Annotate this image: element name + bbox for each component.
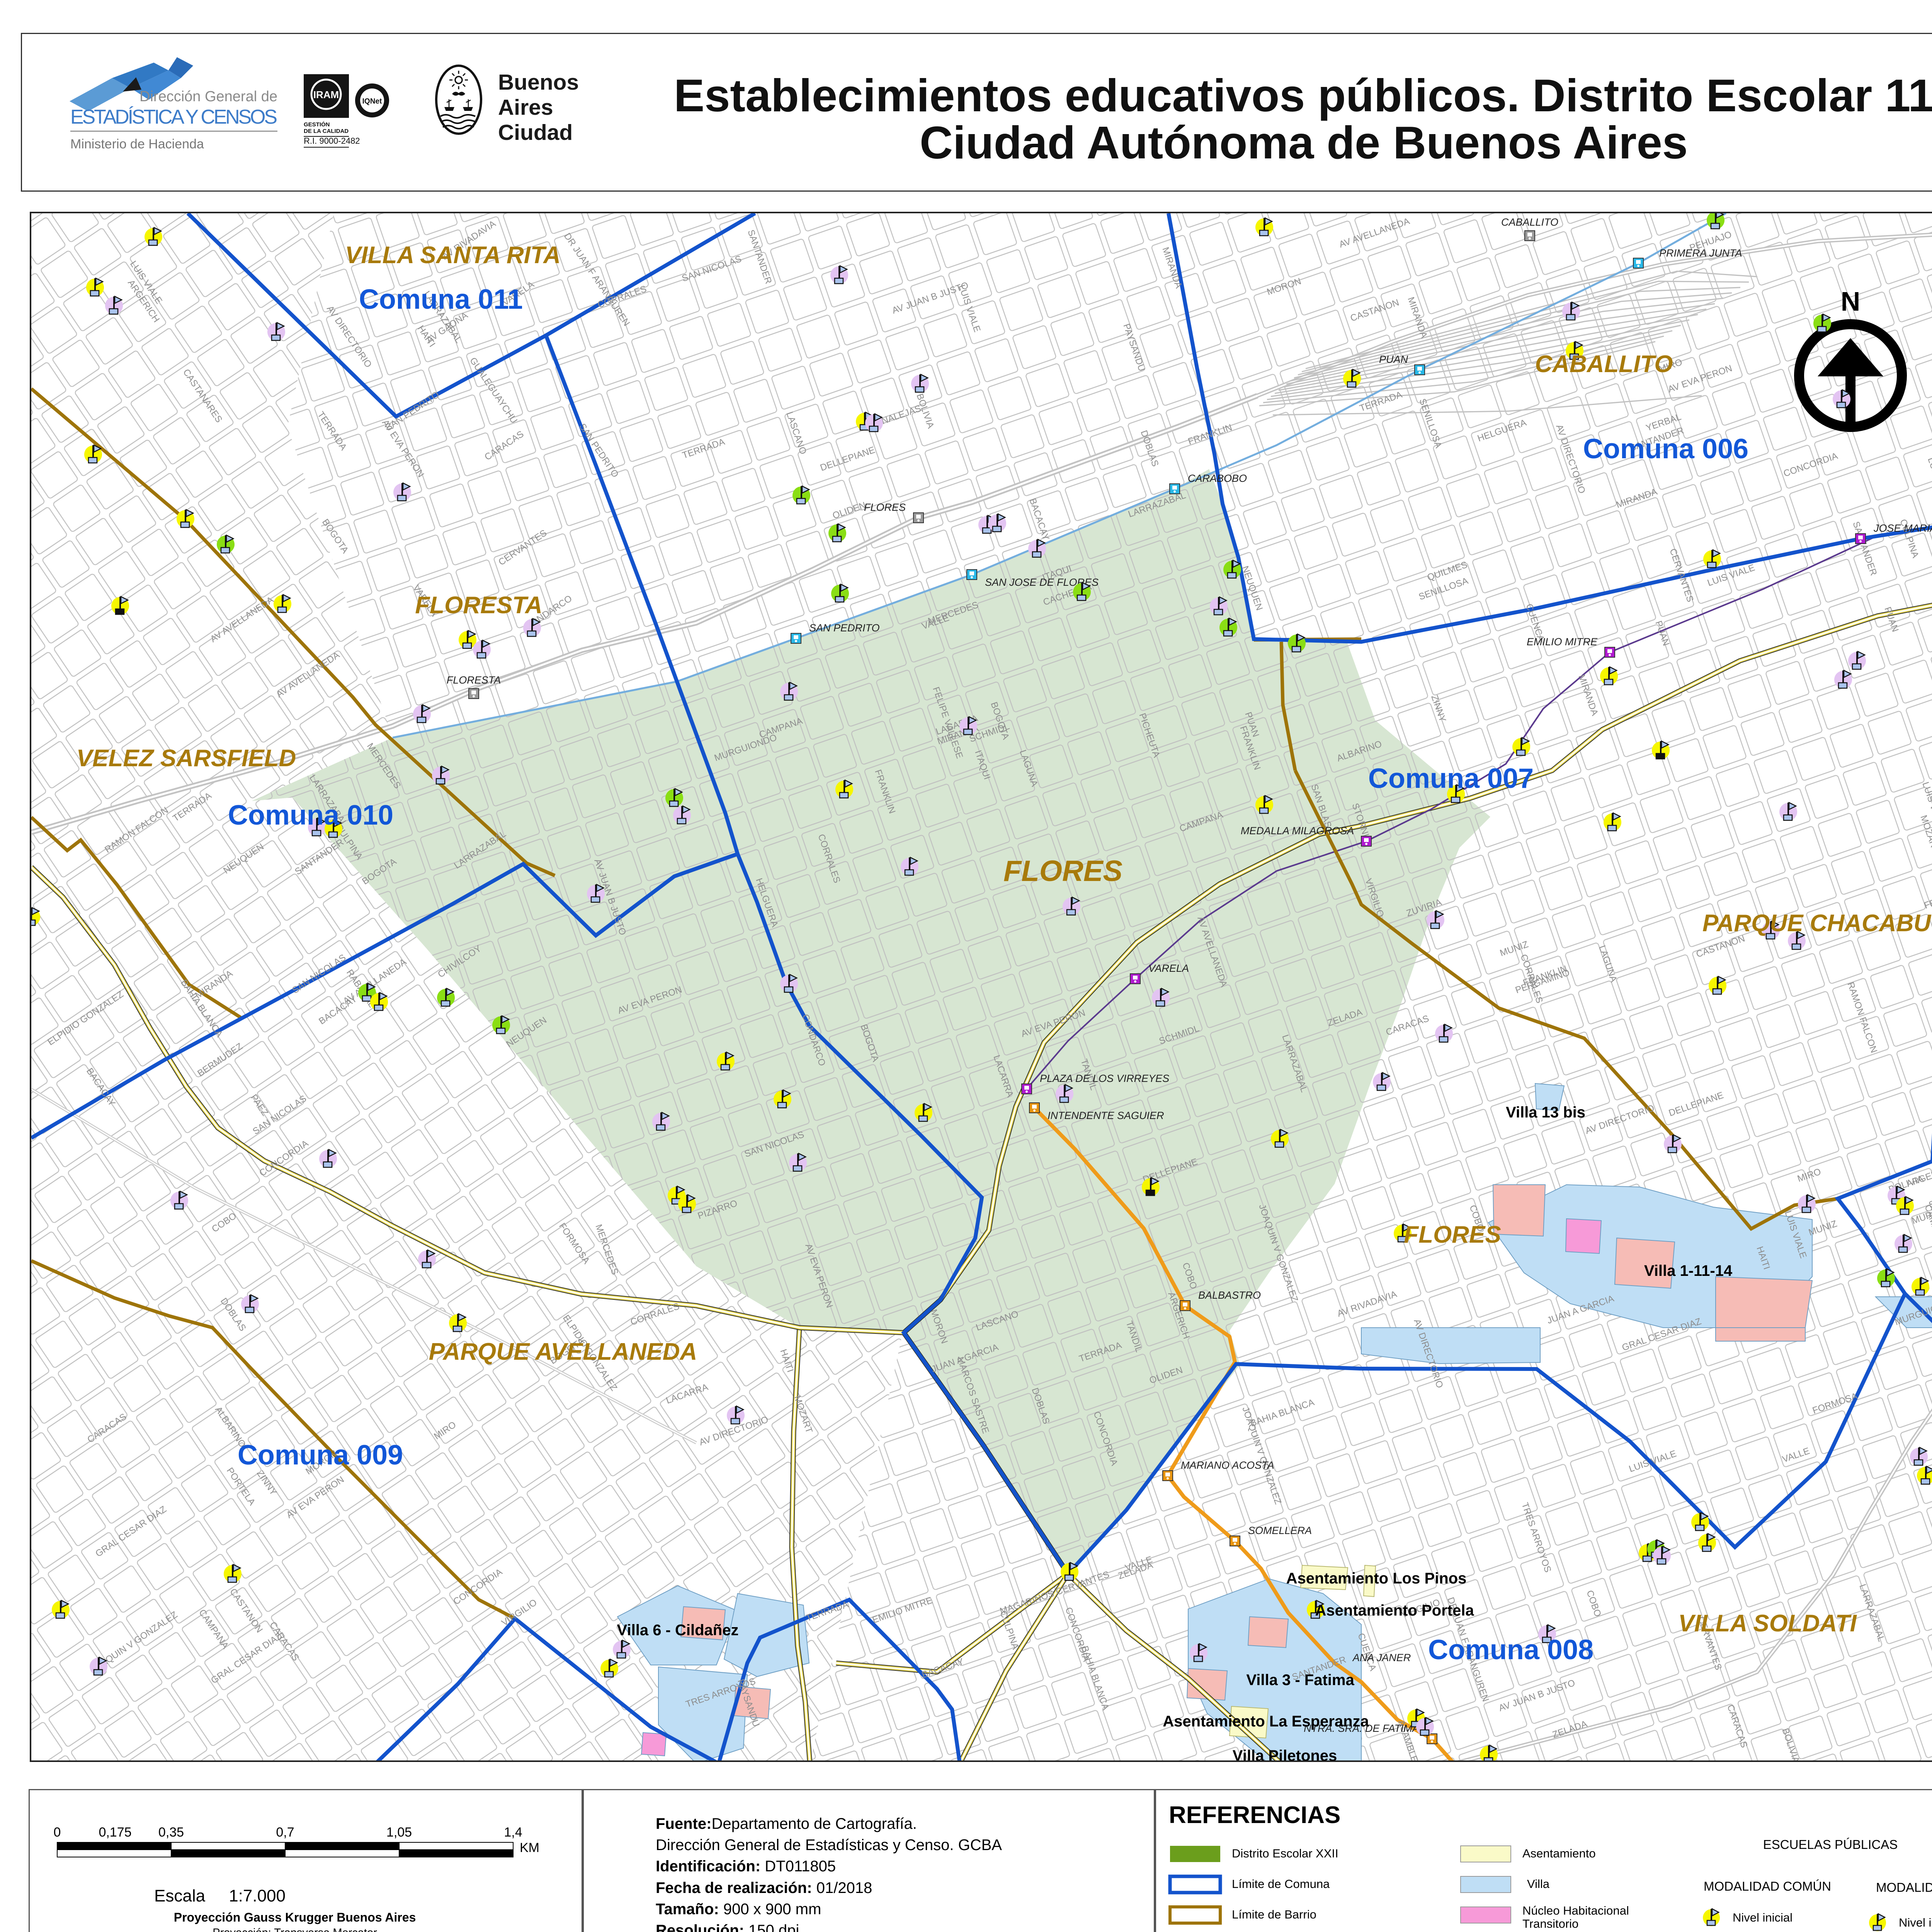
svg-text:Comuna 006: Comuna 006 [1583, 434, 1748, 464]
svg-text:Límite de Barrio: Límite de Barrio [1232, 1908, 1316, 1921]
svg-text:IQNet: IQNet [362, 97, 382, 105]
svg-text:REFERENCIAS: REFERENCIAS [1169, 1802, 1340, 1828]
svg-text:Asentamiento: Asentamiento [1522, 1847, 1596, 1860]
svg-text:Villa 1-11-14: Villa 1-11-14 [1644, 1262, 1733, 1279]
svg-text:Buenos: Buenos [498, 70, 579, 95]
svg-text:SOMELLERA: SOMELLERA [1248, 1525, 1312, 1536]
svg-text:JOSE MARIA MORENO: JOSE MARIA MORENO [1873, 522, 1932, 534]
svg-text:N: N [1841, 286, 1861, 316]
svg-text:FLORES: FLORES [864, 502, 906, 513]
svg-text:Asentamiento Portela: Asentamiento Portela [1315, 1602, 1474, 1619]
svg-text:GESTIÓN: GESTIÓN [304, 121, 330, 128]
svg-text:Asentamiento Los Pinos: Asentamiento Los Pinos [1286, 1570, 1467, 1587]
svg-text:Dirección General de: Dirección General de [139, 88, 277, 105]
svg-text:Comuna 007: Comuna 007 [1368, 763, 1534, 794]
svg-text:PUAN: PUAN [1379, 354, 1408, 365]
svg-text:Comuna 011: Comuna 011 [359, 284, 523, 315]
svg-text:PLAZA DE LOS VIRREYES: PLAZA DE LOS VIRREYES [1040, 1073, 1169, 1084]
svg-text:0,35: 0,35 [158, 1825, 184, 1840]
svg-text:FLORES: FLORES [1003, 855, 1122, 888]
svg-text:1,4: 1,4 [504, 1825, 522, 1840]
svg-text:DE LA CALIDAD: DE LA CALIDAD [304, 128, 349, 134]
svg-text:ESTADÍSTICA Y CENSOS: ESTADÍSTICA Y CENSOS [70, 106, 277, 128]
svg-text:Asentamiento La Esperanza: Asentamiento La Esperanza [1163, 1713, 1369, 1730]
svg-text:Villa 6 - Cildañez: Villa 6 - Cildañez [617, 1622, 739, 1639]
svg-text:0,7: 0,7 [276, 1825, 294, 1840]
svg-text:CABALLITO: CABALLITO [1535, 351, 1673, 378]
svg-text:MODALIDAD ESPECIAL: MODALIDAD ESPECIAL [1876, 1880, 1932, 1895]
svg-text:0: 0 [54, 1825, 61, 1840]
svg-text:VILLA SANTA RITA: VILLA SANTA RITA [345, 242, 561, 269]
svg-text:Proyección Gauss Krugger Bueno: Proyección Gauss Krugger Buenos Aires [174, 1910, 416, 1924]
svg-text:Comuna 010: Comuna 010 [228, 800, 393, 831]
svg-text:INTENDENTE SAGUIER: INTENDENTE SAGUIER [1048, 1110, 1164, 1121]
svg-text:PARQUE AVELLANEDA: PARQUE AVELLANEDA [429, 1338, 697, 1365]
svg-text:ESCUELAS PÚBLICAS: ESCUELAS PÚBLICAS [1763, 1837, 1898, 1852]
svg-text:FLORESTA: FLORESTA [447, 674, 501, 686]
svg-text:CARABOBO: CARABOBO [1188, 473, 1247, 484]
svg-text:EMILIO MITRE: EMILIO MITRE [1527, 636, 1598, 648]
svg-text:SAN PEDRITO: SAN PEDRITO [809, 622, 880, 634]
svg-text:ANA JANER: ANA JANER [1352, 1652, 1411, 1663]
svg-text:BALBASTRO: BALBASTRO [1198, 1289, 1261, 1301]
svg-text:Comuna 008: Comuna 008 [1428, 1634, 1594, 1665]
svg-text:1,05: 1,05 [386, 1825, 412, 1840]
svg-text:Transitorio: Transitorio [1522, 1917, 1578, 1930]
svg-text:Escala 1:7.000: Escala 1:7.000 [154, 1886, 286, 1905]
svg-text:VELEZ SARSFIELD: VELEZ SARSFIELD [77, 745, 296, 772]
svg-text:Villa 13 bis: Villa 13 bis [1506, 1104, 1585, 1121]
svg-text:FLORES: FLORES [1404, 1221, 1501, 1248]
svg-text:VILLA SOLDATI: VILLA SOLDATI [1678, 1610, 1857, 1637]
svg-text:Villa Piletones: Villa Piletones [1233, 1747, 1337, 1762]
svg-text:Aires: Aires [498, 95, 553, 120]
svg-text:VARELA: VARELA [1148, 963, 1189, 974]
svg-text:Límite de Comuna: Límite de Comuna [1232, 1877, 1330, 1891]
svg-text:Villa: Villa [1527, 1877, 1550, 1891]
svg-text:MARIANO ACOSTA: MARIANO ACOSTA [1181, 1459, 1274, 1471]
svg-text:0,175: 0,175 [99, 1825, 131, 1840]
svg-text:MEDALLA MILAGROSA: MEDALLA MILAGROSA [1241, 825, 1354, 837]
svg-text:Núcleo Habitacional: Núcleo Habitacional [1522, 1904, 1629, 1917]
svg-text:PARQUE CHACABUCO: PARQUE CHACABUCO [1702, 910, 1932, 937]
svg-text:PRIMERA JUNTA: PRIMERA JUNTA [1659, 247, 1742, 259]
svg-text:Distrito Escolar XXII: Distrito Escolar XXII [1232, 1847, 1338, 1860]
svg-text:Nivel inicial: Nivel inicial [1733, 1911, 1793, 1924]
svg-text:FLORESTA: FLORESTA [415, 592, 543, 619]
svg-text:Nivel inicial: Nivel inicial [1899, 1916, 1932, 1929]
svg-text:Villa 3 - Fatima: Villa 3 - Fatima [1246, 1672, 1354, 1689]
svg-text:Proyección: Transversa Mercato: Proyección: Transversa Mercator [213, 1927, 377, 1932]
svg-text:Comuna 009: Comuna 009 [238, 1440, 403, 1471]
svg-text:CABALLITO: CABALLITO [1501, 216, 1558, 228]
svg-text:Ciudad: Ciudad [498, 120, 573, 145]
svg-text:R.I. 9000-2482: R.I. 9000-2482 [304, 136, 360, 146]
svg-text:KM: KM [520, 1840, 539, 1855]
svg-text:IRAM: IRAM [313, 89, 339, 100]
svg-text:Ministerio de Hacienda: Ministerio de Hacienda [70, 137, 204, 151]
svg-text:MODALIDAD COMÚN: MODALIDAD COMÚN [1704, 1879, 1831, 1893]
